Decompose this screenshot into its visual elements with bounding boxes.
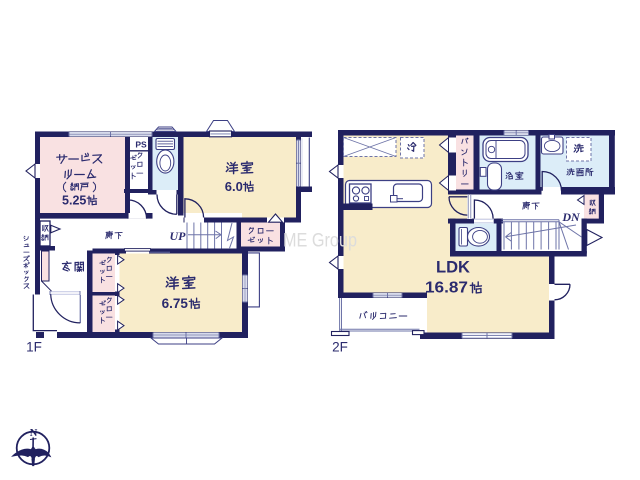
- svg-text:2F: 2F: [332, 340, 348, 355]
- svg-text:16.87: 16.87: [425, 280, 468, 297]
- svg-text:UP: UP: [170, 229, 187, 243]
- svg-text:N: N: [30, 428, 38, 439]
- svg-text:5.25: 5.25: [62, 193, 86, 207]
- svg-text:ME Group: ME Group: [283, 231, 357, 252]
- svg-text:LDK: LDK: [436, 258, 471, 277]
- svg-text:PS: PS: [135, 140, 147, 150]
- svg-text:DN: DN: [561, 210, 581, 224]
- svg-text:6.0: 6.0: [225, 179, 243, 194]
- svg-text:1F: 1F: [26, 340, 42, 355]
- svg-text:6.75: 6.75: [162, 296, 189, 311]
